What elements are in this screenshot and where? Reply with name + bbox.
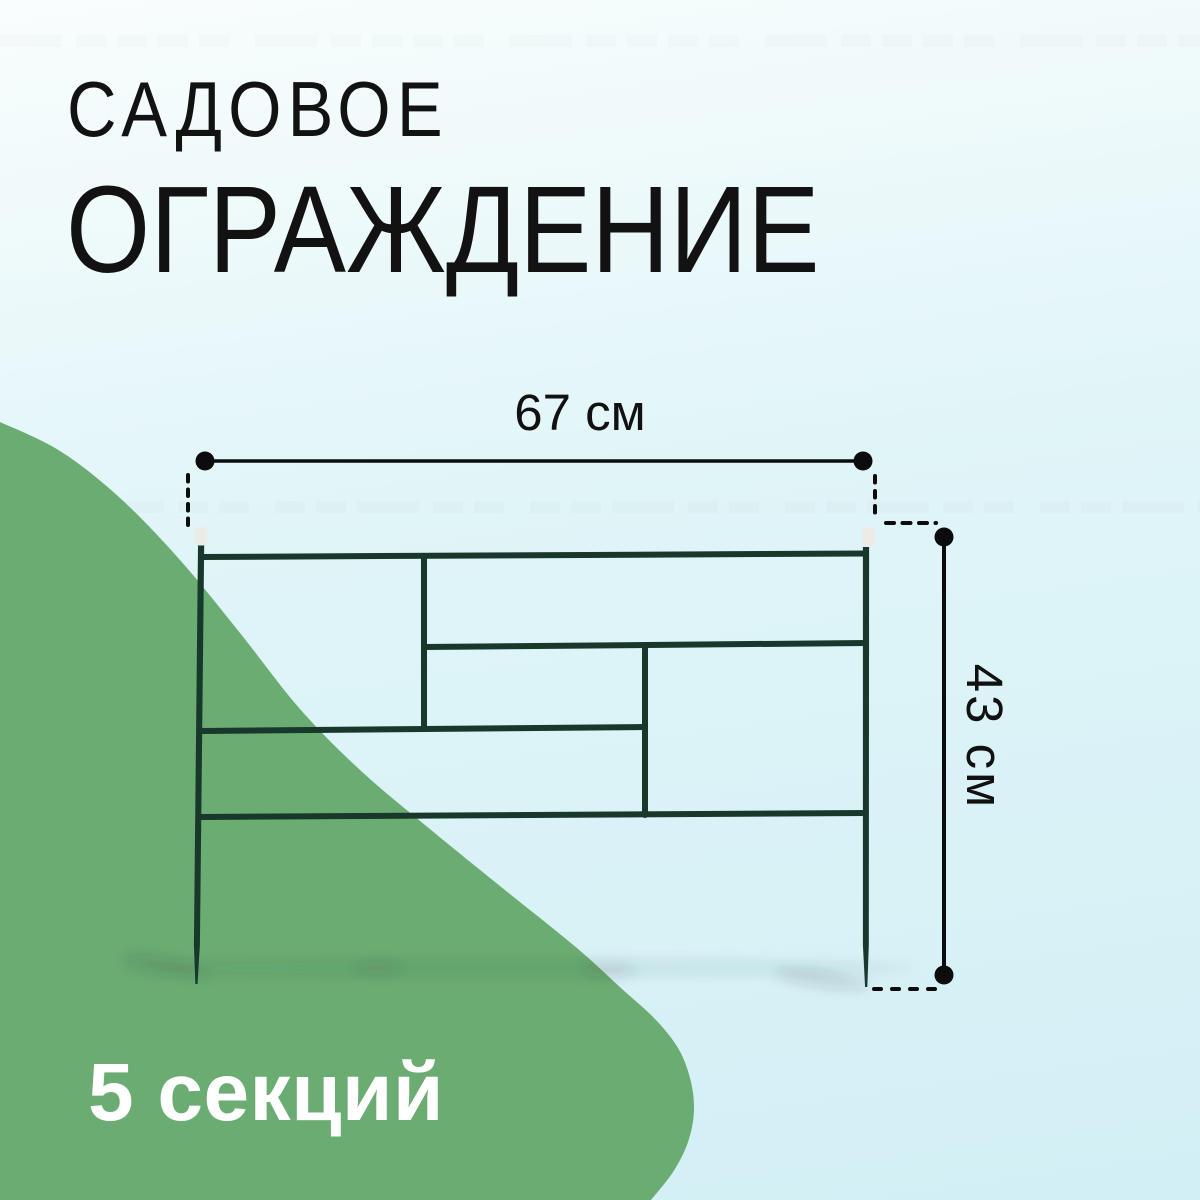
svg-text:43 см: 43 см bbox=[956, 664, 1013, 810]
svg-text:67 см: 67 см bbox=[514, 384, 645, 441]
